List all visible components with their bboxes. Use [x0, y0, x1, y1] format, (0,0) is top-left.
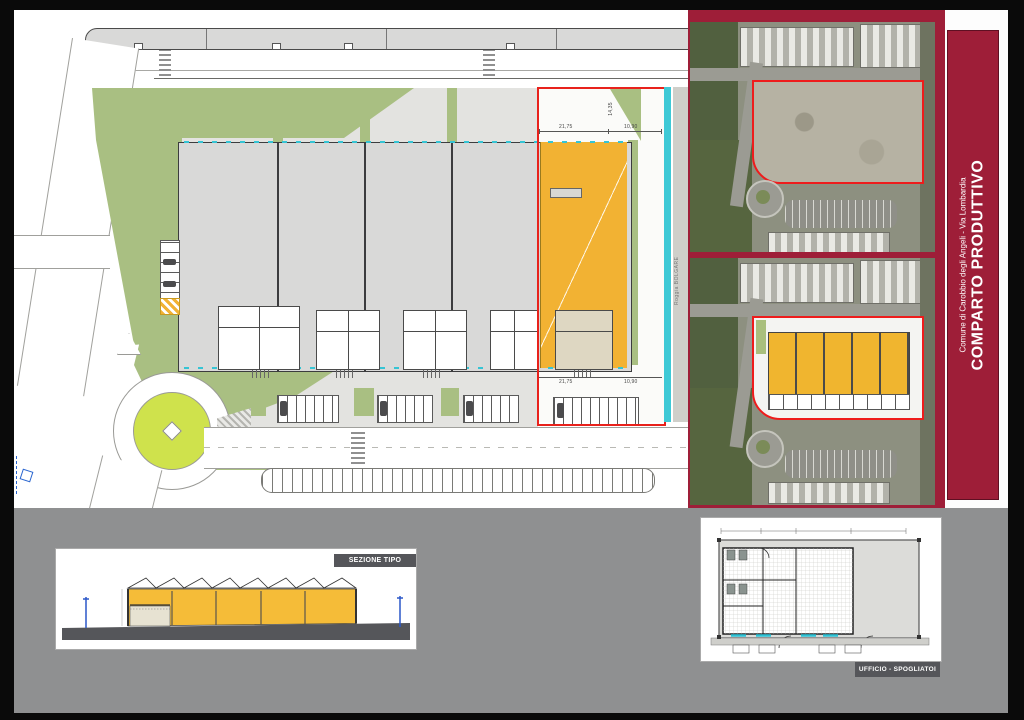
banner-title: COMPARTO PRODUTTIVO [970, 160, 988, 371]
green-area [441, 388, 459, 416]
office-block [316, 310, 380, 370]
dimension-label: 10,90 [624, 124, 638, 130]
sheet-frame: Roggia BOLGARE 21,75 10,90 14,35 21,75 1… [0, 0, 1024, 720]
dimension-label: 21,75 [559, 124, 573, 130]
door-symbol [506, 43, 515, 50]
red-boundary [537, 87, 666, 426]
dimension-label: 14,35 [608, 102, 614, 116]
office-plan-label: UFFICIO - SPOGLIATOI [855, 662, 940, 677]
dimension-label: 21,75 [559, 379, 573, 385]
parking-row [377, 395, 433, 423]
planned-offices [768, 394, 910, 410]
site-plan: Roggia BOLGARE 21,75 10,90 14,35 21,75 1… [14, 10, 688, 508]
aerial-photo-project [690, 258, 935, 505]
street-parking [261, 468, 655, 493]
pedestrian-crossing [351, 430, 365, 464]
canal-strip [664, 87, 671, 422]
green-strip [447, 88, 457, 142]
office-block [218, 306, 300, 370]
existing-building-row [85, 28, 688, 50]
planned-units [768, 332, 910, 396]
green-area [354, 388, 374, 416]
development-lot-outline [752, 80, 924, 184]
section-label: SEZIONE TIPO [334, 554, 416, 567]
footer-band: SEZIONE TIPO [14, 508, 1008, 713]
aerial-panel [688, 10, 945, 508]
project-banner: Comune di Carobbio degli Angeli - Via Lo… [947, 30, 999, 500]
dimension-line [539, 377, 662, 378]
entry-steps [252, 370, 272, 378]
banner-subtitle: Comune di Carobbio degli Angeli - Via Lo… [959, 160, 968, 371]
entry-steps [423, 370, 443, 378]
development-lot-plan [752, 316, 924, 420]
aerial-photo-current [690, 22, 935, 252]
site-north-boundary [154, 78, 688, 79]
green-strip [273, 88, 283, 142]
drawing-sheet: Roggia BOLGARE 21,75 10,90 14,35 21,75 1… [14, 10, 1008, 713]
parking-row [277, 395, 339, 423]
office-block [490, 310, 538, 370]
canal-label: Roggia BOLGARE [674, 225, 680, 305]
section-panel: SEZIONE TIPO [55, 548, 417, 650]
green-strip [360, 88, 370, 142]
pedestrian-crossing [159, 50, 171, 76]
door-symbol [344, 43, 353, 50]
pedestrian-crossing [483, 50, 495, 76]
office-block [403, 310, 467, 370]
office-plan-panel [700, 517, 942, 662]
door-symbol [272, 43, 281, 50]
utility-symbol [16, 456, 51, 494]
dimension-line [539, 131, 662, 132]
south-road [204, 427, 688, 469]
parking-row [463, 395, 519, 423]
entry-steps [336, 370, 356, 378]
branch-road [14, 235, 110, 269]
office-plan-drawing [701, 518, 939, 659]
tech-cabin [160, 298, 180, 315]
dimension-label: 10,90 [624, 379, 638, 385]
